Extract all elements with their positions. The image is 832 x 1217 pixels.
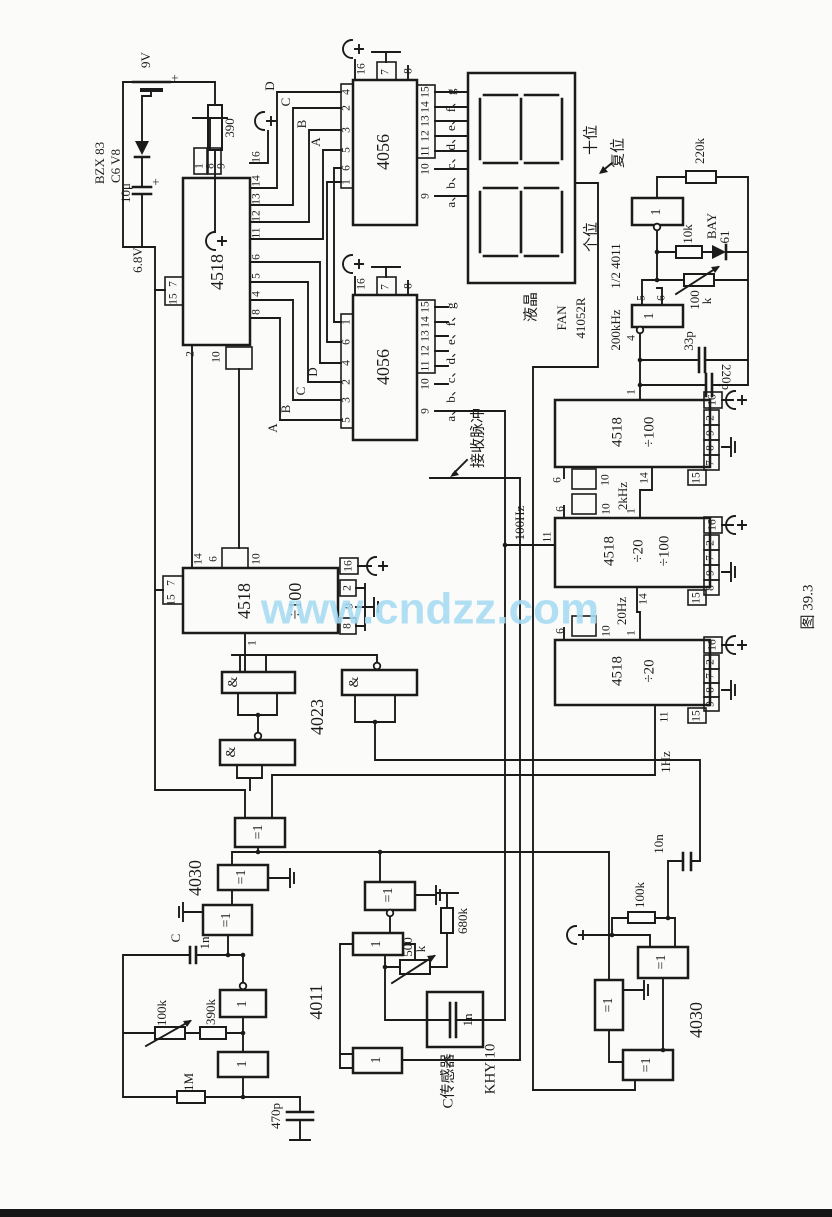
node [378,850,383,855]
resistor-390-label: 390 [222,118,237,138]
pin-14: 14 [638,593,650,605]
pin-2: 2 [341,379,353,385]
pin-6: 6 [208,556,220,562]
ic-4056b-name: 4056 [373,349,393,385]
cap-10u-label: 10μ [118,183,133,203]
gate-bubble [637,327,644,334]
diode-label-2: 61 [717,231,732,244]
pin-4: 4 [626,335,638,341]
node [256,713,261,718]
node [226,953,231,958]
pin-2: 2 [705,415,717,421]
rail-voltage-label: 6.8V [130,247,145,273]
pin-15: 15 [691,710,703,722]
bus-d-label: D [262,81,277,90]
node [666,916,671,921]
pin-4: 4 [341,360,353,366]
resistor-390k-label: 390k [203,999,218,1026]
gate-2-label: 1 [642,313,657,320]
xor-symbol: =1 [251,825,266,840]
pin-10: 10 [251,553,263,565]
pin-16: 16 [356,63,368,75]
pin-13: 13 [420,115,432,127]
resistor-220k [686,171,716,183]
pin-1: 1 [341,319,353,325]
gate-bubble [240,983,247,990]
ic-4518-name: 4518 [207,254,227,290]
pin-2: 2 [705,540,717,546]
node [241,953,246,958]
resistor-680k [441,908,453,933]
scan-edge-bottom [0,1209,832,1217]
pin-15: 15 [166,594,178,606]
resistor-220k-label: 220k [692,138,707,165]
pin-7: 7 [380,284,392,290]
divA-ratio: ÷100 [641,417,657,448]
battery-plus: + [167,74,182,81]
pin-2: 2 [341,105,353,111]
ic-4011-label: 4011 [306,984,326,1019]
osc-ic-label: 1/2 4011 [608,243,623,288]
bus-b-label: B [294,119,309,128]
cap-c-value: 1n [197,936,212,950]
pin-11: 11 [420,145,432,156]
pin-7: 7 [705,555,717,561]
bus-a-label-2: A [265,423,280,433]
schematic-canvas: 9V + 390 BZX 83 C6 V8 10μ + 6.8V 4518 1 … [0,0,832,1217]
pin-4: 4 [251,291,263,297]
sensor-model: KHY 10 [482,1044,498,1095]
resistor-10k [676,246,702,258]
pin-7: 7 [705,673,717,679]
gate-bubble [255,733,262,740]
node [256,850,261,855]
freq-20hz: 20Hz [614,597,629,625]
resistor-100k-br [628,912,655,923]
bus-c-label: C [278,98,293,107]
pin-8: 8 [705,585,717,591]
pin-15: 15 [691,592,703,604]
xor-symbol: =1 [639,1058,654,1073]
sensor-label: C传感器 [439,1053,456,1108]
bus-a-label: A [308,137,323,147]
pin-7: 7 [168,281,180,287]
node [661,1048,666,1053]
pin-16: 16 [707,394,719,406]
pin-16: 16 [251,151,263,163]
lcd-type-label: 液晶 [522,292,539,322]
gate-1-label: 1 [649,209,664,216]
pin-9: 9 [705,430,717,436]
pin-15: 15 [691,472,703,484]
pin-12: 12 [420,345,432,357]
divC-name: 4518 [609,656,625,686]
pin-2: 2 [705,659,717,665]
lcd-model-label: 41052R [573,297,588,339]
pin-5: 5 [341,417,353,423]
pin-5: 5 [636,295,648,301]
pin-10: 10 [420,163,432,175]
resistor-1m [177,1091,205,1103]
gate-bubble [374,663,381,670]
pin-8: 8 [403,283,415,289]
figure-caption: 图 39.3 [799,584,816,629]
resistor-1m-label: 1M [181,1073,196,1092]
cap-470p-label: 470p [268,1103,283,1129]
divB-ratio1: ÷20 [630,539,646,562]
ic-4056a-name: 4056 [373,134,393,170]
divB-name: 4518 [601,536,617,566]
segment-labels: a、b、c、d、e、f、g [443,302,458,422]
pin-1: 1 [341,179,353,185]
pin-10: 10 [601,503,613,515]
pin-11: 11 [420,360,432,371]
nand-symbol: 1 [369,941,384,948]
mid4518-name: 4518 [234,583,254,619]
pin-16: 16 [707,639,719,651]
pin-9: 9 [420,193,432,199]
cap-10n-label: 10n [651,834,666,854]
zener-label-1: BZX 83 [92,142,107,184]
pin-5: 5 [251,273,263,279]
pin-4: 4 [341,89,353,95]
pin-15: 15 [168,293,180,305]
pin-16: 16 [343,560,355,572]
units-digit-label: 个位 [582,222,599,252]
bus-c-label-2: C [293,387,308,396]
cap-33p-label: 33p [681,331,696,351]
pin-14: 14 [420,101,432,113]
divC-ratio: ÷20 [641,659,657,682]
pin-15: 15 [420,86,432,98]
pin-9: 9 [216,163,228,169]
resistor-680k-label: 680k [455,908,470,935]
pin-14: 14 [251,175,263,187]
pin-7: 7 [166,580,178,586]
lcd-brand-label: FAN [554,305,569,331]
ic-4023-label: 4023 [307,699,327,735]
node [503,543,508,548]
reset-label: 复位 [608,138,626,168]
xor-symbol: =1 [219,913,234,928]
pin-9: 9 [420,408,432,414]
pin-10: 10 [600,474,612,486]
cap-220p-label: 220p [719,364,734,390]
pin-15: 15 [420,301,432,313]
freq-1hz: 1Hz [658,751,673,773]
pin-6: 6 [341,339,353,345]
xor-symbol: =1 [381,888,396,903]
pin-1: 1 [247,640,259,646]
nand-symbol: 1 [235,1001,250,1008]
node [638,383,643,388]
resistor-390k [200,1027,226,1039]
pin-6: 6 [555,506,567,512]
battery-voltage-label: 9V [138,51,153,68]
bus-b-label-2: B [278,404,293,413]
pin-7: 7 [380,69,392,75]
pin-8: 8 [705,687,717,693]
node [373,720,378,725]
pin-3: 3 [341,397,353,403]
pin-6: 6 [251,254,263,260]
pin-6: 6 [341,165,353,171]
node [655,250,660,255]
pin-11: 11 [251,227,263,238]
gate-bubble [387,910,394,917]
resistor-10k-label: 10k [680,224,695,244]
node [383,965,388,970]
pin-16: 16 [707,519,719,531]
pin-13: 13 [420,330,432,342]
freq-2khz: 2kHz [615,482,630,510]
gate-bubble [654,224,661,231]
pin-12: 12 [420,130,432,142]
nand-symbol: 1 [369,1057,384,1064]
and-gate-symbol: & [224,746,239,757]
pin-1: 1 [626,630,638,636]
pin-12: 12 [251,210,263,222]
node [241,1095,246,1100]
pin-10: 10 [211,351,223,363]
pin-16: 16 [356,278,368,290]
pin-11: 11 [659,711,671,722]
ic-4030-left-label: 4030 [185,860,205,896]
node [610,933,615,938]
pin-10: 10 [420,378,432,390]
pin-10: 10 [601,625,613,637]
node [655,278,660,283]
pot-100k-unit: k [699,297,714,304]
pin-3: 3 [341,127,353,133]
pot-500k-unit: k [413,945,428,952]
pin-1: 1 [626,389,638,395]
cap-10u-plus: + [148,178,163,185]
node [241,1031,246,1036]
pin-14: 14 [639,472,651,484]
pin-6: 6 [656,295,668,301]
cap-c-name: C [168,934,183,943]
pin-1: 1 [626,508,638,514]
scanned-schematic-page: 9V + 390 BZX 83 C6 V8 10μ + 6.8V 4518 1 … [0,0,832,1217]
zener-label-2: C6 V8 [108,149,123,183]
pin-8b: 8 [251,309,263,315]
divB-ratio2: ÷100 [656,536,672,567]
xor-symbol: =1 [601,998,616,1013]
and-gate-symbol: & [347,676,362,687]
divA-name: 4518 [609,417,625,447]
ic-4030-right-label: 4030 [686,1002,706,1038]
pin-9: 9 [705,701,717,707]
bus-d-label-2: D [305,367,320,376]
pin-8: 8 [705,445,717,451]
pin-9: 9 [705,570,717,576]
and-gate-symbol: & [226,676,241,687]
pin-6: 6 [552,477,564,483]
xor-symbol: =1 [654,955,669,970]
pin-8: 8 [403,68,415,74]
pin-14: 14 [193,553,205,565]
watermark-text: www.cndzz.com [260,585,599,634]
tens-digit-label: 十位 [582,125,599,155]
osc-freq-label: 200kHz [608,309,623,350]
pulse-label: 接收脉冲 [469,408,486,468]
pot-100k-left-label: 100k [154,1000,169,1027]
pin-2: 2 [185,351,197,357]
sensor-cap-value: 1n [460,1013,475,1027]
nand-symbol: 1 [235,1061,250,1068]
pin-7: 7 [705,460,717,466]
pin-14: 14 [420,316,432,328]
resistor-100k-br-label: 100k [632,882,647,909]
pin-11: 11 [542,531,554,542]
node [638,358,643,363]
segment-labels: a、b、c、d、e、f、g [443,88,458,208]
pin-5: 5 [341,147,353,153]
xor-symbol: =1 [234,870,249,885]
pin-13: 13 [251,193,263,205]
